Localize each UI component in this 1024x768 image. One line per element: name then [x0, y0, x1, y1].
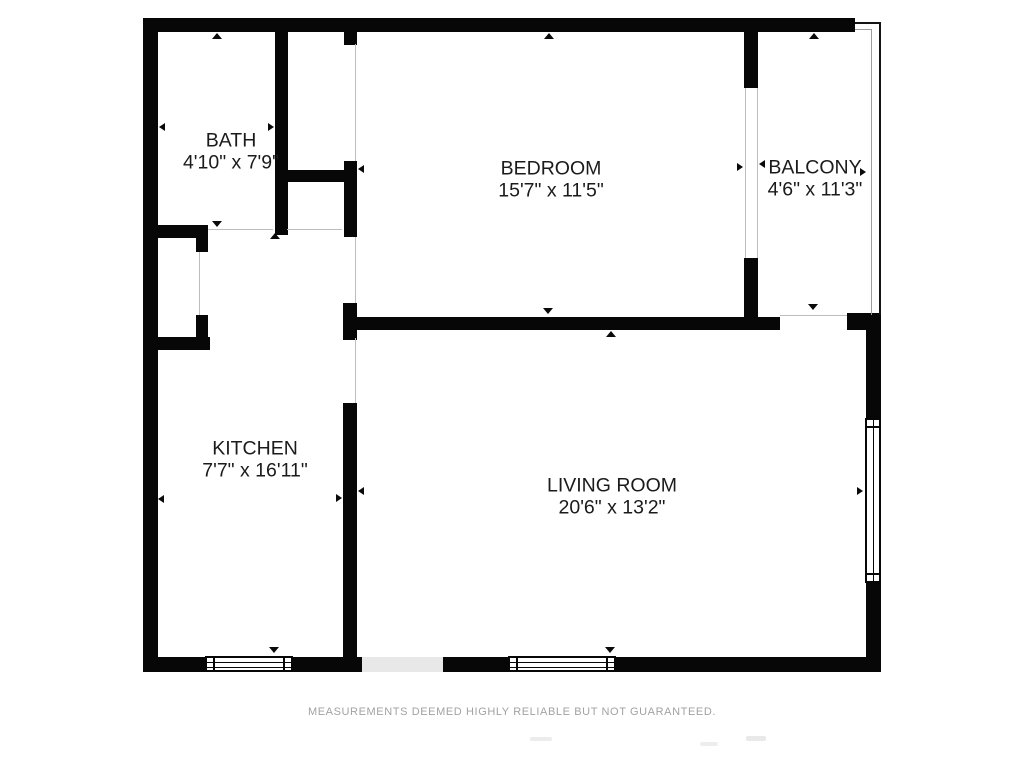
opening-line-bedroom-balcony	[757, 88, 758, 258]
dimension-arrow	[605, 647, 615, 653]
wall-segment-bedroom-right-top	[744, 32, 758, 88]
wall-segment-right-upper	[866, 330, 881, 418]
room-name: BALCONY	[768, 158, 863, 180]
wall-segment-bedroom-bottom	[343, 317, 780, 330]
dimension-arrow	[809, 33, 819, 39]
floor-plan: BATH 4'10" x 7'9" BEDROOM 15'7" x 11'5" …	[0, 0, 1024, 768]
opening-line-hall	[287, 229, 342, 230]
room-label-bedroom: BEDROOM 15'7" x 11'5"	[498, 159, 604, 202]
wall-segment-right-lower	[866, 583, 881, 672]
dimension-arrow	[158, 495, 164, 503]
wall-segment-divider	[343, 403, 357, 657]
dimension-arrow	[358, 487, 364, 495]
room-dimensions: 15'7" x 11'5"	[498, 180, 604, 202]
opening-line-bedroom-entry	[355, 44, 356, 161]
dimension-arrow	[857, 487, 863, 495]
opening-line-closet	[199, 252, 200, 315]
wall-segment-closet-top	[157, 225, 208, 238]
room-label-bath: BATH 4'10" x 7'9"	[183, 131, 279, 174]
dimension-arrow	[336, 494, 342, 502]
opening-line-bath	[208, 229, 273, 230]
dimension-arrow	[358, 165, 364, 173]
room-name: KITCHEN	[202, 439, 308, 461]
watermark-remnant	[700, 742, 718, 746]
wall-segment-bedroom-left	[344, 161, 357, 237]
wall-segment-bedroom-right-bottom	[744, 258, 758, 317]
room-dimensions: 20'6" x 13'2"	[547, 497, 677, 519]
dimension-arrow	[808, 304, 818, 310]
wall-segment-bottom	[293, 657, 362, 672]
room-name: BATH	[183, 131, 279, 153]
wall-segment-left	[143, 18, 158, 672]
wall-segment-top	[143, 18, 855, 32]
watermark-remnant	[746, 736, 766, 741]
dimension-arrow	[759, 160, 765, 168]
dimension-arrow	[737, 163, 743, 171]
wall-segment-bottom	[143, 657, 205, 672]
dimension-arrow	[543, 308, 553, 314]
dimension-arrow	[269, 647, 279, 653]
dimension-arrow	[212, 221, 222, 227]
wall-segment-ne-corner	[847, 313, 881, 330]
wall-segment-bottom	[616, 657, 881, 672]
living-room-window-south	[508, 656, 616, 672]
room-name: BEDROOM	[498, 159, 604, 181]
opening-line-kitchen-living	[355, 338, 356, 403]
room-label-balcony: BALCONY 4'6" x 11'3"	[768, 158, 863, 201]
dimension-arrow	[606, 331, 616, 337]
wall-segment-bottom	[443, 657, 508, 672]
room-label-kitchen: KITCHEN 7'7" x 16'11"	[202, 439, 308, 482]
dimension-arrow	[212, 33, 222, 39]
room-name: LIVING ROOM	[547, 476, 677, 498]
wall-segment-hall	[288, 170, 345, 182]
room-dimensions: 4'6" x 11'3"	[768, 179, 863, 201]
dimension-arrow	[159, 123, 165, 131]
wall-segment-closet-stub	[196, 238, 208, 252]
opening-line-kitchen-entry	[355, 237, 356, 303]
dimension-arrow	[270, 233, 280, 239]
room-dimensions: 7'7" x 16'11"	[202, 460, 308, 482]
dimension-arrow	[544, 33, 554, 39]
living-room-window-east	[865, 418, 881, 583]
kitchen-window	[205, 656, 293, 672]
watermark-remnant	[530, 737, 552, 741]
entry-door-opening	[362, 657, 443, 672]
wall-segment-closet-bottom	[157, 337, 210, 350]
disclaimer-text: MEASUREMENTS DEEMED HIGHLY RELIABLE BUT …	[0, 706, 1024, 718]
room-label-living-room: LIVING ROOM 20'6" x 13'2"	[547, 476, 677, 519]
opening-line-living-balcony	[780, 315, 847, 316]
opening-line-bedroom-balcony	[745, 88, 746, 258]
wall-segment-closet-stub	[196, 315, 208, 337]
room-dimensions: 4'10" x 7'9"	[183, 152, 279, 174]
